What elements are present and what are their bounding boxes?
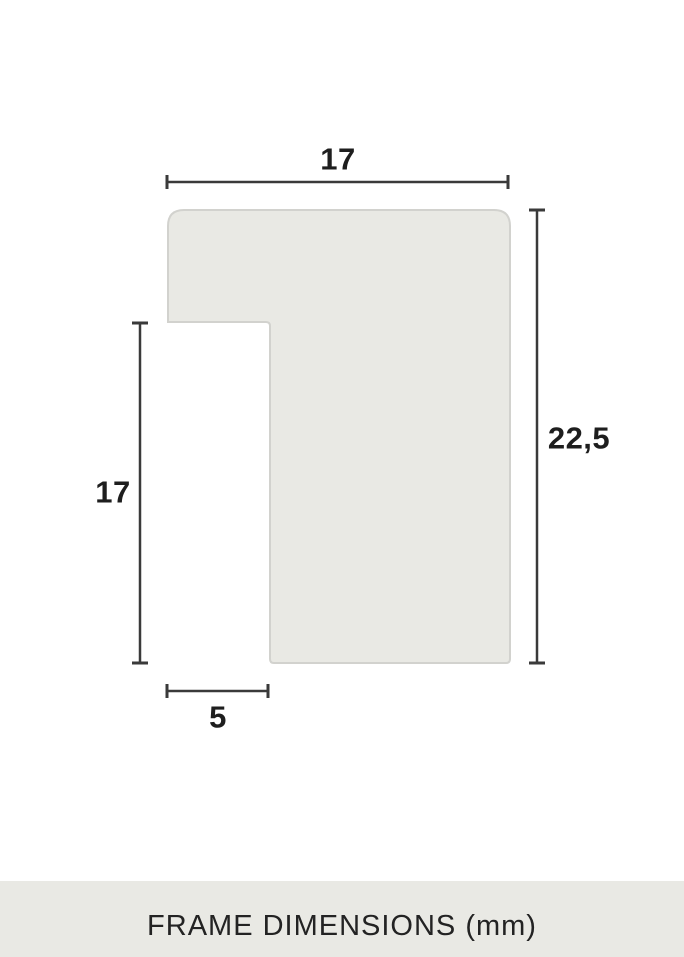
footer-bar: FRAME DIMENSIONS (mm) (0, 881, 684, 957)
dimension-label-right-height: 22,5 (548, 423, 610, 454)
frame-profile-diagram: 17 22,5 17 5 (0, 0, 684, 881)
dimension-label-left-height: 17 (95, 477, 130, 508)
dimension-label-bottom-width: 5 (209, 702, 227, 733)
frame-profile-shape (168, 210, 510, 663)
dimension-label-top-width: 17 (320, 144, 355, 175)
dimension-line-right (529, 210, 545, 663)
dimension-line-top (167, 175, 508, 189)
dimension-line-bottom (167, 684, 268, 698)
footer-label: FRAME DIMENSIONS (mm) (147, 912, 537, 941)
page: 17 22,5 17 5 FRAME DIMENSIONS (mm) (0, 0, 684, 957)
dimension-line-left (132, 323, 148, 663)
